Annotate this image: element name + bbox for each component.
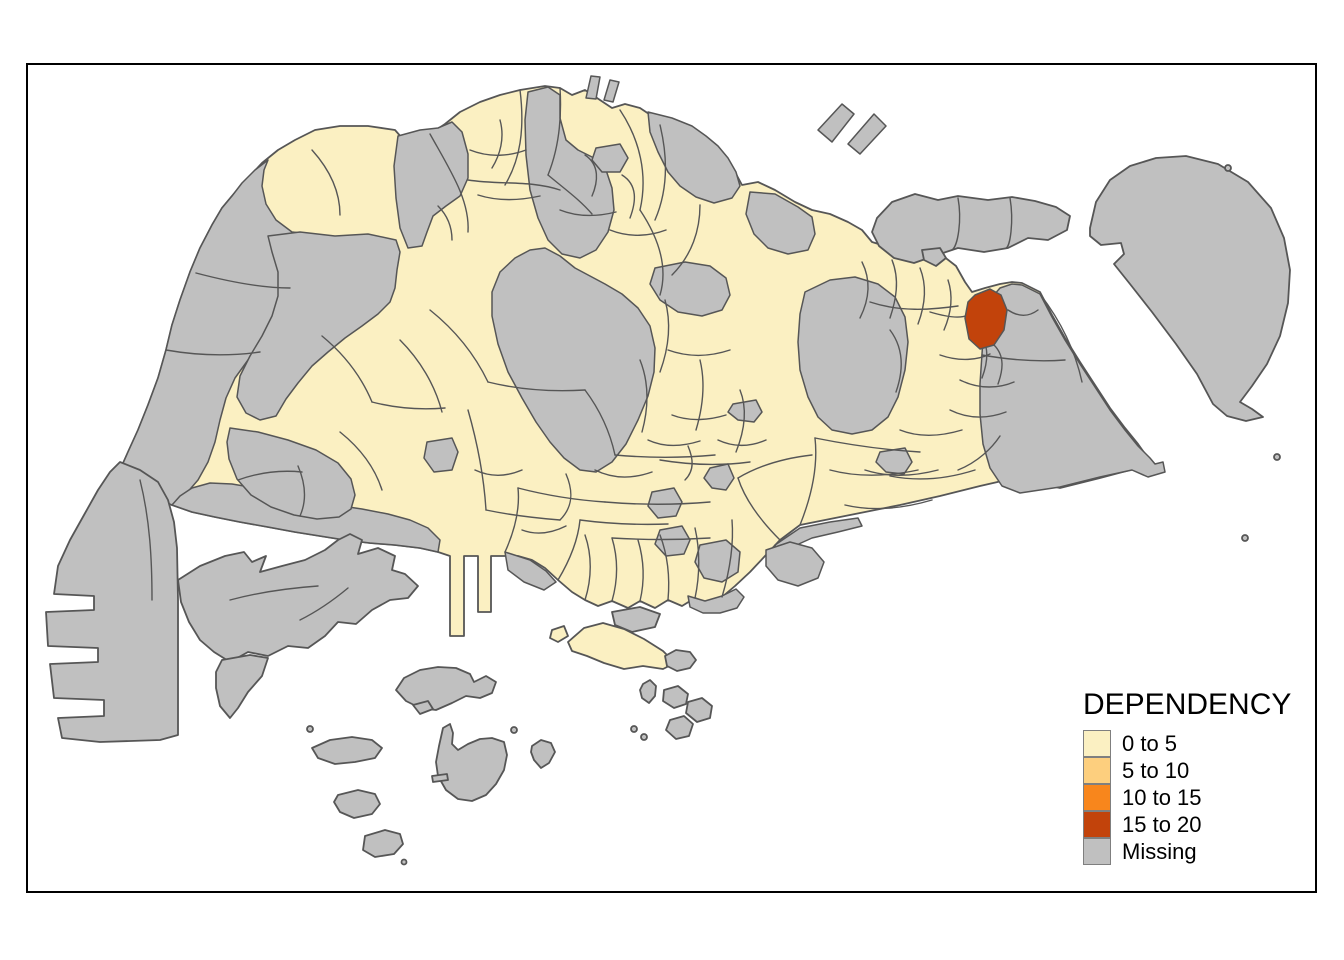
legend-item: 0 to 5	[1083, 730, 1291, 757]
island-stjohn-5-missing	[666, 716, 693, 739]
island-sentosa	[568, 623, 675, 669]
legend-swatch	[1083, 757, 1111, 784]
island-pawai-missing	[363, 830, 403, 857]
region-airbase-missing	[798, 277, 908, 434]
island-jurong-south-missing	[216, 655, 268, 718]
legend-title: DEPENDENCY	[1083, 689, 1291, 721]
islet-dot-1	[631, 726, 637, 732]
legend: DEPENDENCY 0 to 55 to 1010 to 1515 to 20…	[1083, 689, 1291, 865]
legend-swatch	[1083, 811, 1111, 838]
island-semakau-missing	[436, 724, 507, 801]
region-punggol-timor-missing	[848, 114, 886, 154]
islet-dot-3	[511, 727, 517, 733]
legend-swatch	[1083, 784, 1111, 811]
islet-dot-2	[641, 734, 647, 740]
islet-dot-7	[1274, 454, 1280, 460]
island-pulau-ubin-missing	[872, 194, 1070, 263]
region-naval-pier-1-missing	[586, 76, 600, 99]
island-stjohn-2-missing	[640, 680, 656, 703]
island-sudong-missing	[334, 790, 380, 818]
region-changi-missing	[980, 284, 1165, 493]
island-bukum-missing	[396, 667, 496, 710]
legend-item: 5 to 10	[1083, 757, 1291, 784]
legend-swatch	[1083, 838, 1111, 865]
legend-item: 10 to 15	[1083, 784, 1291, 811]
island-tuas-missing	[46, 462, 178, 742]
island-stjohn-3-missing	[663, 686, 688, 708]
legend-item-label: 5 to 10	[1122, 758, 1189, 784]
island-sentosa-west	[550, 626, 568, 642]
region-marina-missing	[766, 542, 824, 586]
island-crescent-missing	[531, 740, 555, 768]
legend-item: Missing	[1083, 838, 1291, 865]
island-dash-missing	[432, 774, 448, 782]
figure: DEPENDENCY 0 to 55 to 1010 to 1515 to 20…	[0, 0, 1344, 960]
islet-dot-6	[1225, 165, 1231, 171]
legend-item-label: 15 to 20	[1122, 812, 1202, 838]
islet-dot-4	[307, 726, 313, 732]
region-naval-pier-2-missing	[604, 80, 619, 102]
region-punggol-barat-missing	[818, 104, 854, 142]
legend-item-label: 10 to 15	[1122, 785, 1202, 811]
legend-item-label: 0 to 5	[1122, 731, 1177, 757]
island-stjohn-1-missing	[665, 650, 696, 671]
island-pulau-tekong-missing	[1090, 156, 1290, 421]
legend-items: 0 to 55 to 1010 to 1515 to 20Missing	[1083, 730, 1291, 865]
island-stjohn-4-missing	[686, 698, 712, 722]
legend-item-label: Missing	[1122, 839, 1197, 865]
island-west-flat-missing	[312, 737, 382, 764]
legend-swatch	[1083, 730, 1111, 757]
island-jurong-island-missing	[178, 534, 418, 662]
islet-dot-8	[1242, 535, 1248, 541]
islet-dot-5	[402, 860, 407, 865]
legend-item: 15 to 20	[1083, 811, 1291, 838]
